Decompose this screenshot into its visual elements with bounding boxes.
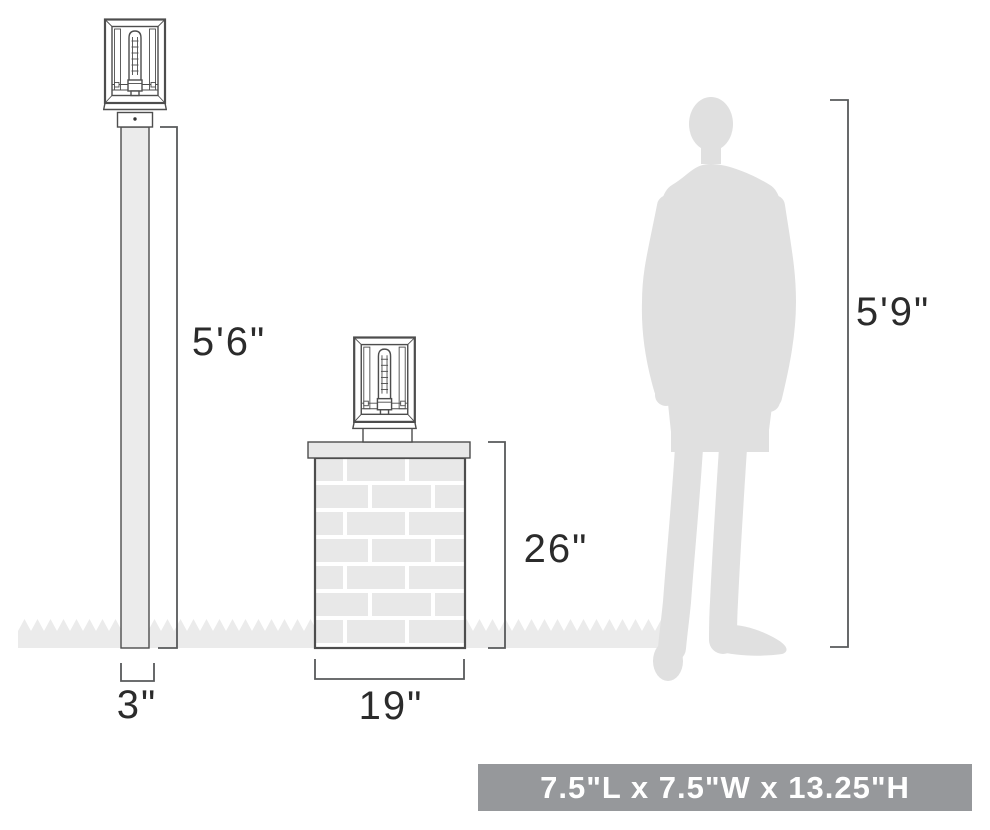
dimension-diagram-canvas: 5'6" 26" 5'9" 3" 19" 7.5"L x 7.5"W x 13.… [0, 0, 990, 830]
dim-label-post-width: 3" [117, 683, 157, 728]
dim-label-pier-height: 26" [524, 527, 589, 572]
post-light-figure [104, 20, 167, 649]
brick-pier-icon [315, 458, 465, 648]
pier-mount-plate [363, 428, 412, 442]
dim-bracket-pier-height [488, 442, 505, 648]
dim-bracket-pier-width [315, 659, 464, 679]
pier-cap [308, 442, 470, 458]
size-banner: 7.5"L x 7.5"W x 13.25"H [478, 764, 972, 811]
lantern-fixture-icon [353, 338, 416, 429]
dim-label-post-height: 5'6" [192, 320, 266, 365]
dim-bracket-person-height [830, 100, 848, 647]
person-silhouette-icon [653, 97, 787, 681]
lantern-fixture-icon [104, 20, 167, 110]
dim-label-pier-width: 19" [359, 684, 424, 729]
lamp-post-icon [121, 127, 149, 648]
dim-label-person-height: 5'9" [856, 290, 930, 335]
collar-screw-dot [133, 117, 136, 120]
pier-light-figure [308, 338, 470, 648]
dim-bracket-post-height [158, 127, 177, 648]
size-banner-text: 7.5"L x 7.5"W x 13.25"H [540, 770, 910, 806]
dim-bracket-post-width [121, 663, 154, 681]
